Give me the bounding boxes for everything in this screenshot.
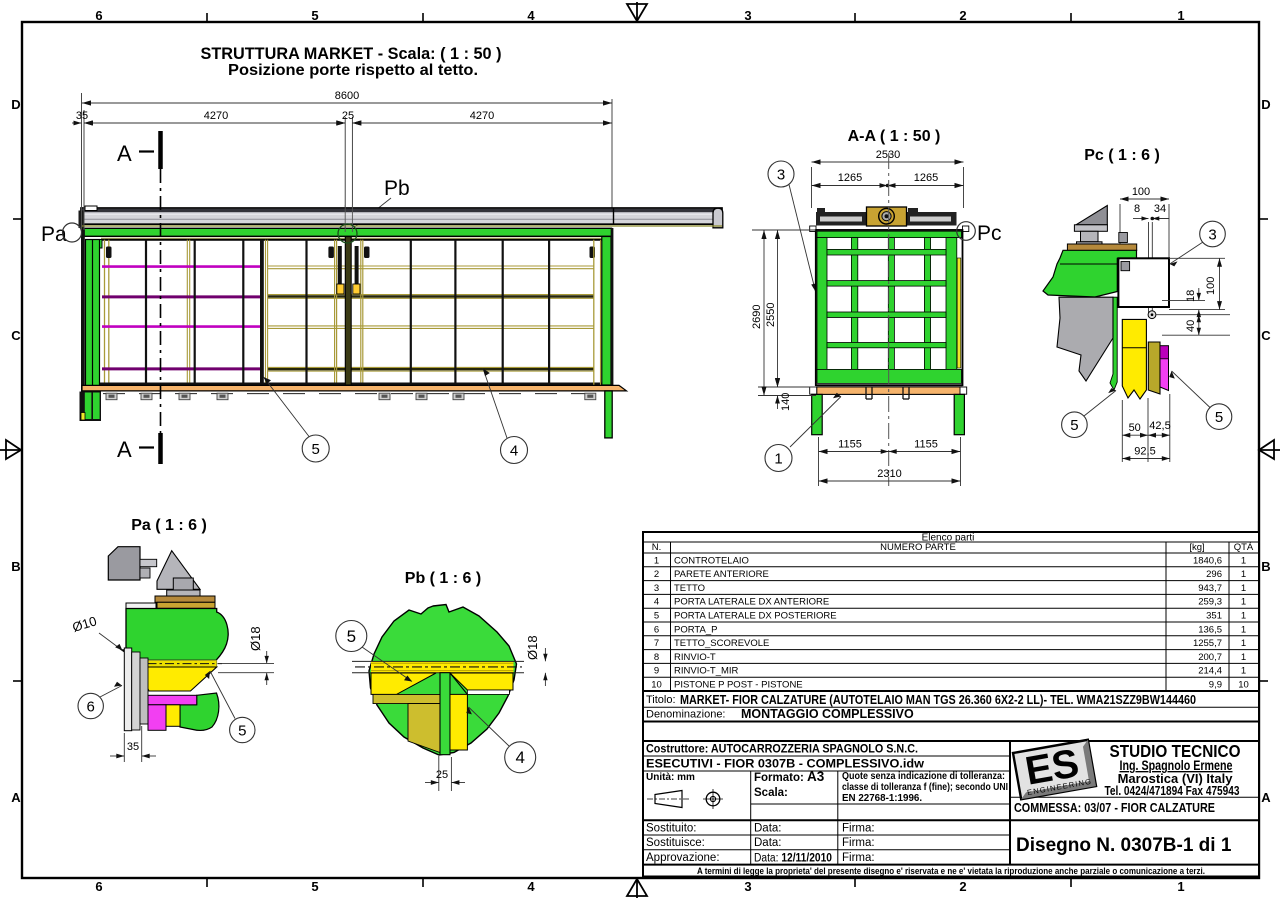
svg-text:35: 35 [76,110,88,122]
svg-text:PORTA LATERALE DX POSTERIORE: PORTA LATERALE DX POSTERIORE [674,611,837,622]
svg-text:6: 6 [87,699,95,716]
svg-text:C: C [1261,328,1271,343]
svg-text:PISTONE P POST - PISTONE: PISTONE P POST - PISTONE [674,680,803,691]
svg-text:140: 140 [780,393,792,411]
svg-text:4: 4 [527,8,535,23]
svg-text:214,4: 214,4 [1198,666,1222,677]
svg-text:COMMESSA: 03/07 - FIOR CALZATU: COMMESSA: 03/07 - FIOR CALZATURE [1014,800,1215,815]
svg-text:1: 1 [1241,638,1246,649]
svg-text:B: B [1261,559,1270,574]
svg-text:351: 351 [1206,611,1222,622]
svg-text:9: 9 [654,666,659,677]
svg-text:1: 1 [1177,879,1184,894]
svg-text:Pc: Pc [977,222,1002,245]
svg-text:4270: 4270 [470,110,494,122]
svg-text:RINVIO-T: RINVIO-T [674,652,716,663]
svg-text:Denominazione:: Denominazione: [646,709,726,721]
svg-text:D: D [1261,97,1270,112]
svg-text:200,7: 200,7 [1198,652,1222,663]
svg-text:6: 6 [95,879,102,894]
svg-text:1: 1 [1241,652,1246,663]
svg-text:Ø10: Ø10 [70,613,98,635]
svg-text:7: 7 [654,638,659,649]
svg-text:10: 10 [1238,680,1249,691]
svg-text:25: 25 [342,110,354,122]
svg-text:Sostituisce:: Sostituisce: [646,837,705,849]
svg-text:Pb ( 1 : 6 ): Pb ( 1 : 6 ) [405,570,481,587]
svg-text:4: 4 [510,443,518,460]
svg-text:Sostituito:: Sostituito: [646,823,697,835]
svg-text:classe di tolleranza f (fine);: classe di tolleranza f (fine); secondo U… [842,782,1008,793]
svg-text:NUMERO PARTE: NUMERO PARTE [880,542,956,553]
svg-text:A-A ( 1 : 50 ): A-A ( 1 : 50 ) [848,128,941,145]
svg-text:[kg]: [kg] [1189,542,1204,553]
svg-text:10: 10 [651,680,662,691]
svg-text:ESECUTIVI - FIOR 0307B - COMPL: ESECUTIVI - FIOR 0307B - COMPLESSIVO.idw [646,757,925,771]
svg-text:2: 2 [654,569,659,580]
svg-text:Data:: Data: [754,823,782,835]
svg-text:5: 5 [347,627,356,646]
svg-text:Data: 12/11/2010: Data: 12/11/2010 [754,853,832,865]
svg-text:CONTROTELAIO: CONTROTELAIO [674,555,749,566]
svg-text:100: 100 [1132,186,1150,198]
svg-text:1840,6: 1840,6 [1193,555,1222,566]
svg-text:8: 8 [1134,203,1140,215]
svg-text:A: A [117,437,132,462]
svg-text:4: 4 [515,748,524,767]
svg-text:35: 35 [127,741,139,753]
svg-text:4: 4 [527,879,535,894]
svg-text:EN 22768-1:1996.: EN 22768-1:1996. [842,793,922,804]
svg-text:8: 8 [654,652,659,663]
svg-text:C: C [11,328,21,343]
svg-text:5: 5 [1215,409,1223,426]
svg-text:Disegno N. 0307B-1 di 1: Disegno N. 0307B-1 di 1 [1016,835,1232,856]
svg-text:MONTAGGIO COMPLESSIVO: MONTAGGIO COMPLESSIVO [741,707,914,721]
svg-text:Formato: A3: Formato: A3 [754,769,825,784]
svg-text:2: 2 [959,879,966,894]
svg-text:6: 6 [654,624,659,635]
svg-text:Ø18: Ø18 [248,626,263,651]
svg-text:3: 3 [1208,227,1216,244]
svg-text:40: 40 [1185,320,1197,332]
svg-text:A: A [1261,790,1271,805]
svg-text:1255,7: 1255,7 [1193,638,1222,649]
svg-text:9,9: 9,9 [1209,680,1222,691]
svg-text:25: 25 [436,769,448,781]
svg-text:1: 1 [1241,569,1246,580]
svg-text:259,3: 259,3 [1198,597,1222,608]
svg-text:50: 50 [1129,422,1141,434]
svg-text:1: 1 [1241,555,1246,566]
svg-text:A termini di legge la propriet: A termini di legge la proprieta' del pre… [697,866,1205,877]
svg-text:5: 5 [238,723,246,740]
svg-text:MARKET- FIOR CALZATURE (AUTOTE: MARKET- FIOR CALZATURE (AUTOTELAIO MAN T… [680,693,1196,707]
svg-text:5: 5 [654,611,659,622]
svg-text:2530: 2530 [876,149,900,161]
svg-text:PORTA LATERALE DX ANTERIORE: PORTA LATERALE DX ANTERIORE [674,597,829,608]
svg-text:Approvazione:: Approvazione: [646,852,720,864]
svg-text:5: 5 [311,879,318,894]
svg-text:3: 3 [654,583,659,594]
svg-text:1: 1 [1241,597,1246,608]
svg-text:Scala:: Scala: [754,787,788,799]
svg-text:Firma:: Firma: [842,823,875,835]
svg-text:STRUTTURA MARKET - Scala: ( 1: STRUTTURA MARKET - Scala: ( 1 : 50 ) [201,44,502,63]
svg-text:Titolo:: Titolo: [646,694,676,706]
svg-text:Data:: Data: [754,837,782,849]
svg-text:2310: 2310 [877,468,901,480]
svg-text:136,5: 136,5 [1198,624,1222,635]
svg-text:1: 1 [654,555,659,566]
svg-text:2690: 2690 [751,305,763,329]
svg-text:A: A [11,790,21,805]
svg-text:296: 296 [1206,569,1222,580]
svg-text:1: 1 [1241,583,1246,594]
svg-text:1: 1 [1241,624,1246,635]
svg-text:3: 3 [777,167,785,184]
svg-text:1265: 1265 [838,172,862,184]
svg-text:2: 2 [959,8,966,23]
svg-text:1: 1 [1241,611,1246,622]
svg-text:Costruttore: AUTOCARROZZERIA S: Costruttore: AUTOCARROZZERIA SPAGNOLO S.… [646,742,918,756]
svg-text:1: 1 [1241,666,1246,677]
svg-text:Posizione porte rispetto al te: Posizione porte rispetto al tetto. [228,62,478,79]
svg-text:6: 6 [95,8,102,23]
svg-text:Pb: Pb [384,177,410,200]
svg-text:5: 5 [1070,417,1078,434]
svg-text:N.: N. [652,542,662,553]
svg-text:RINVIO-T_MIR: RINVIO-T_MIR [674,666,739,677]
svg-text:42,5: 42,5 [1149,420,1170,432]
svg-text:A: A [117,141,132,166]
svg-text:1155: 1155 [914,439,938,451]
svg-text:3: 3 [744,8,751,23]
svg-text:5: 5 [311,8,318,23]
svg-text:TETTO: TETTO [674,583,705,594]
svg-text:8600: 8600 [335,90,359,102]
svg-text:34: 34 [1154,203,1166,215]
svg-text:3: 3 [744,879,751,894]
svg-text:TETTO_SCOREVOLE: TETTO_SCOREVOLE [674,638,769,649]
svg-text:PARETE ANTERIORE: PARETE ANTERIORE [674,569,769,580]
svg-text:2550: 2550 [765,303,777,327]
svg-text:B: B [11,559,20,574]
svg-text:92,5: 92,5 [1134,446,1155,458]
svg-text:943,7: 943,7 [1198,583,1222,594]
svg-text:1: 1 [1177,8,1184,23]
svg-text:5: 5 [312,441,320,458]
svg-text:Firma:: Firma: [842,837,875,849]
svg-text:1155: 1155 [838,439,862,451]
svg-text:18: 18 [1185,290,1197,302]
svg-text:100: 100 [1205,277,1217,295]
svg-text:Unità: mm: Unità: mm [646,772,695,783]
svg-text:D: D [11,97,20,112]
svg-text:1: 1 [774,451,782,468]
svg-text:Pa ( 1 : 6 ): Pa ( 1 : 6 ) [131,517,207,534]
svg-text:Ø18: Ø18 [525,635,540,660]
svg-text:Quote senza indicazione di tol: Quote senza indicazione di tolleranza: [842,771,1005,782]
svg-text:Pc ( 1 : 6 ): Pc ( 1 : 6 ) [1084,147,1160,164]
svg-text:Tel. 0424/471894 Fax 475943: Tel. 0424/471894 Fax 475943 [1105,783,1240,798]
svg-text:Firma:: Firma: [842,852,875,864]
svg-text:PORTA_P: PORTA_P [674,624,717,635]
svg-text:QTÀ: QTÀ [1234,542,1254,553]
svg-text:1265: 1265 [914,172,938,184]
svg-text:4270: 4270 [204,110,228,122]
svg-text:4: 4 [654,597,659,608]
